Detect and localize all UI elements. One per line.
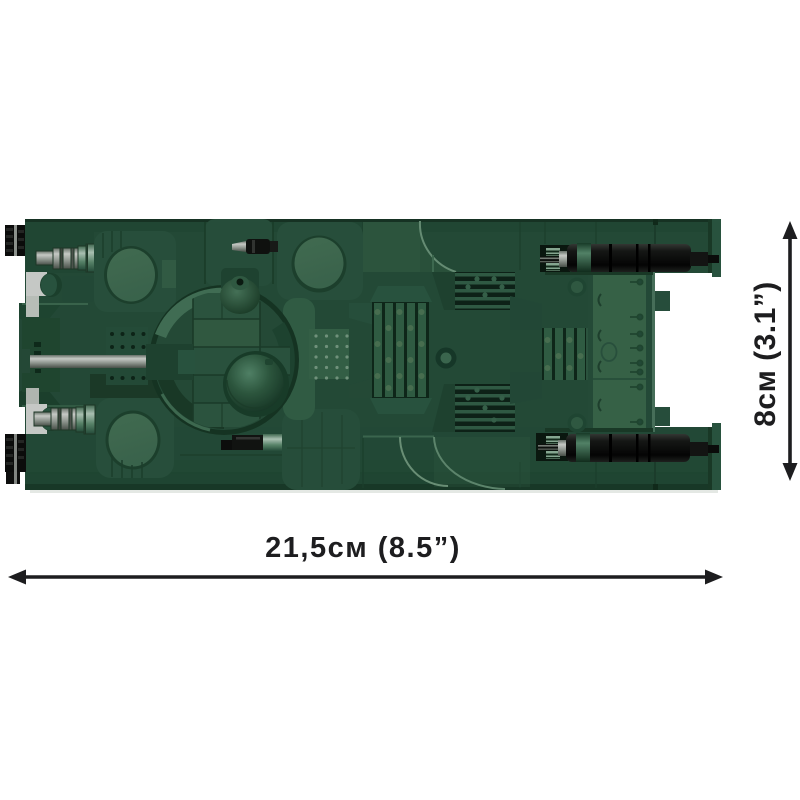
svg-text:21,5см (8.5”): 21,5см (8.5”) — [265, 532, 461, 564]
svg-text:8см (3.1”): 8см (3.1”) — [749, 281, 782, 427]
